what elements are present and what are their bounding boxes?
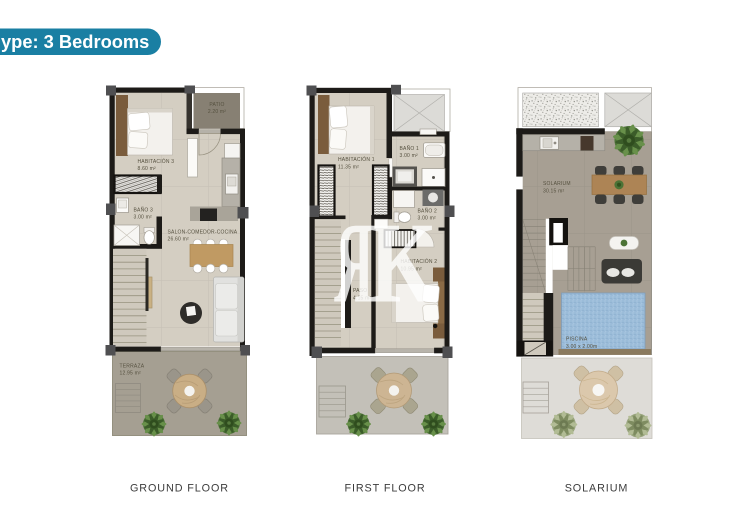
svg-text:HABITACIÓN 3: HABITACIÓN 3 <box>138 158 175 165</box>
svg-text:PISCINA: PISCINA <box>566 337 588 343</box>
svg-text:SOLARIUM: SOLARIUM <box>565 483 629 495</box>
svg-text:GROUND FLOOR: GROUND FLOOR <box>130 483 229 495</box>
svg-text:30.15 m²: 30.15 m² <box>543 189 564 195</box>
svg-text:2.20 m²: 2.20 m² <box>208 109 226 115</box>
svg-text:ype: 3 Bedrooms: ype: 3 Bedrooms <box>1 31 149 52</box>
svg-text:3.00 m²: 3.00 m² <box>400 153 418 159</box>
svg-text:SOLARIUM: SOLARIUM <box>543 181 571 187</box>
svg-text:BAÑO 1: BAÑO 1 <box>400 145 420 152</box>
svg-text:11.35 m²: 11.35 m² <box>338 165 359 171</box>
svg-text:3.00 m²: 3.00 m² <box>134 215 152 221</box>
svg-text:12.95 m²: 12.95 m² <box>120 371 141 377</box>
svg-text:PATIO: PATIO <box>209 102 224 108</box>
svg-text:HABITACIÓN 1: HABITACIÓN 1 <box>338 156 375 163</box>
svg-text:26.60 m²: 26.60 m² <box>168 237 189 243</box>
svg-text:R: R <box>334 199 373 327</box>
svg-text:BAÑO 3: BAÑO 3 <box>134 207 154 214</box>
svg-text:8.60 m²: 8.60 m² <box>138 166 156 172</box>
svg-text:TERRAZA: TERRAZA <box>120 364 145 370</box>
svg-text:FIRST FLOOR: FIRST FLOOR <box>344 483 425 495</box>
svg-text:SALON-COMEDOR-COCINA: SALON-COMEDOR-COCINA <box>168 230 238 236</box>
svg-text:K: K <box>370 200 438 328</box>
